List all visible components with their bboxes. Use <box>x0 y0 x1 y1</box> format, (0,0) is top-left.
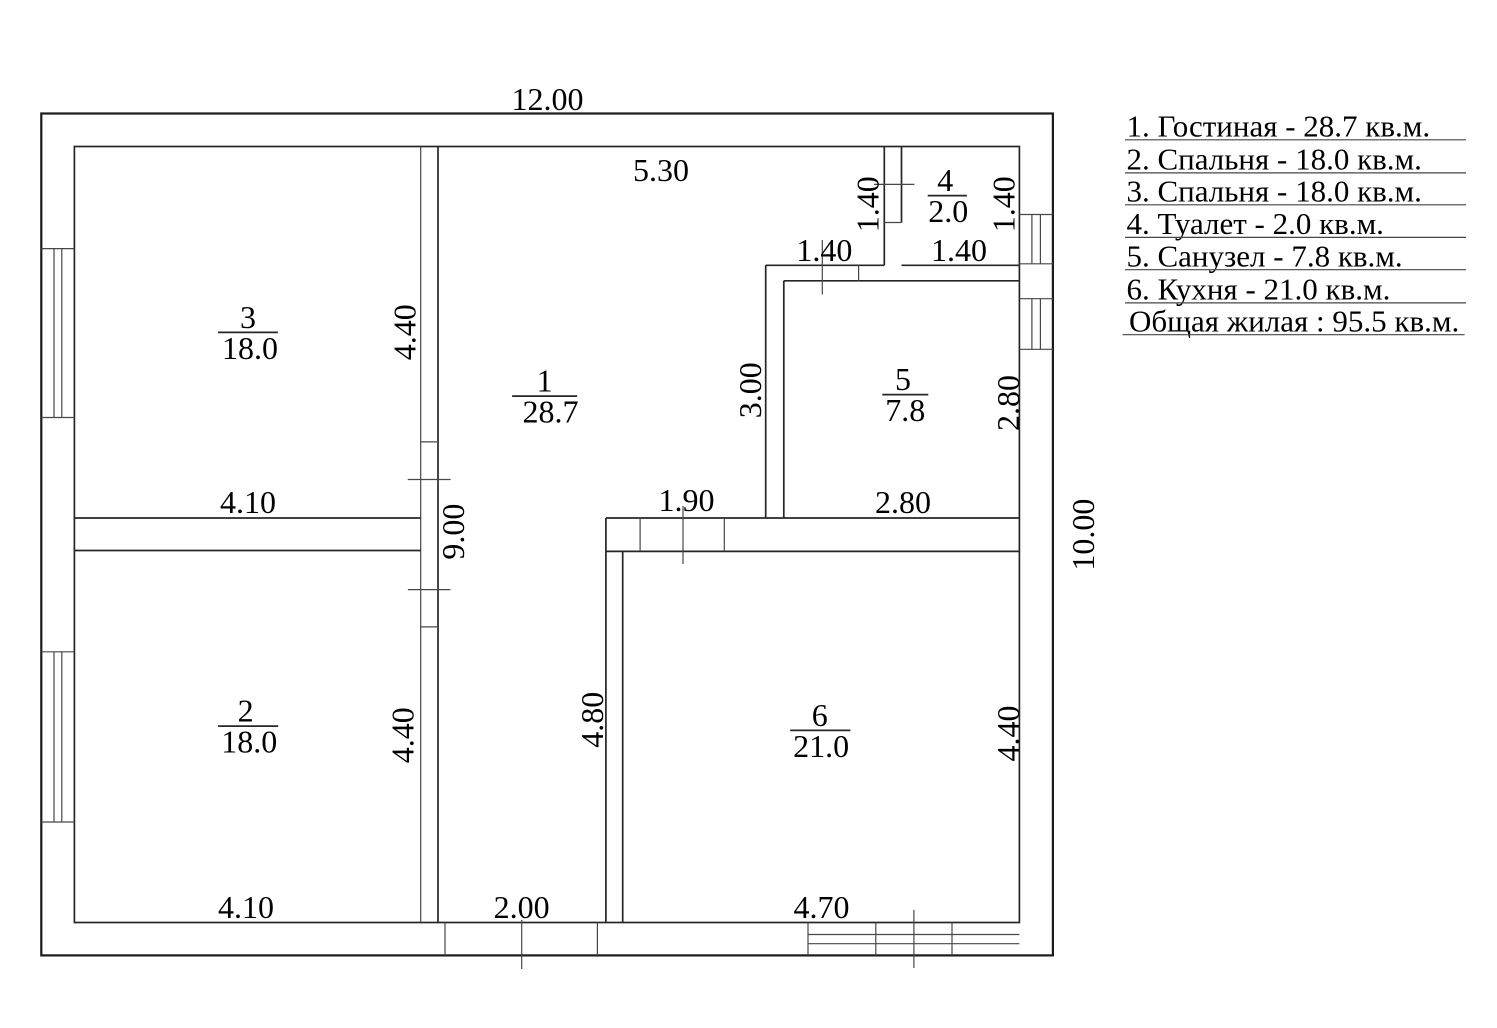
svg-text:4.10: 4.10 <box>220 484 276 520</box>
svg-text:6. Кухня - 21.0 кв.м.: 6. Кухня - 21.0 кв.м. <box>1127 272 1391 307</box>
svg-text:1.40: 1.40 <box>931 232 987 268</box>
svg-text:2. Спальня - 18.0 кв.м.: 2. Спальня - 18.0 кв.м. <box>1127 142 1422 177</box>
svg-text:1.90: 1.90 <box>659 482 715 518</box>
svg-text:4.40: 4.40 <box>387 304 423 360</box>
svg-text:4. Туалет - 2.0 кв.м.: 4. Туалет - 2.0 кв.м. <box>1127 206 1384 241</box>
svg-text:1. Гостиная - 28.7 кв.м.: 1. Гостиная - 28.7 кв.м. <box>1127 109 1431 144</box>
svg-text:21.0: 21.0 <box>793 728 849 764</box>
svg-text:18.0: 18.0 <box>222 330 278 366</box>
svg-text:1.40: 1.40 <box>796 232 852 268</box>
svg-text:12.00: 12.00 <box>512 81 584 117</box>
svg-text:7.8: 7.8 <box>885 392 925 428</box>
svg-text:5. Санузел - 7.8 кв.м.: 5. Санузел - 7.8 кв.м. <box>1127 238 1403 273</box>
svg-text:1.40: 1.40 <box>849 176 885 232</box>
svg-text:3. Спальня - 18.0 кв.м.: 3. Спальня - 18.0 кв.м. <box>1127 174 1422 209</box>
svg-text:28.7: 28.7 <box>523 394 579 430</box>
svg-text:2.00: 2.00 <box>494 889 550 925</box>
svg-text:5.30: 5.30 <box>633 152 689 188</box>
svg-text:4.80: 4.80 <box>574 692 610 748</box>
svg-text:2.80: 2.80 <box>875 484 931 520</box>
svg-text:18.0: 18.0 <box>221 724 277 760</box>
svg-text:Общая жилая : 95.5 кв.м.: Общая жилая : 95.5 кв.м. <box>1129 303 1459 338</box>
svg-text:4.10: 4.10 <box>218 889 274 925</box>
svg-text:2.0: 2.0 <box>928 193 968 229</box>
svg-text:10.00: 10.00 <box>1065 499 1101 571</box>
svg-text:9.00: 9.00 <box>435 504 471 560</box>
svg-text:4.40: 4.40 <box>990 706 1026 762</box>
svg-text:3.00: 3.00 <box>732 362 768 418</box>
svg-text:4.40: 4.40 <box>385 707 421 763</box>
svg-text:4.70: 4.70 <box>794 889 850 925</box>
svg-text:2.80: 2.80 <box>990 375 1026 431</box>
svg-text:1.40: 1.40 <box>985 176 1021 232</box>
